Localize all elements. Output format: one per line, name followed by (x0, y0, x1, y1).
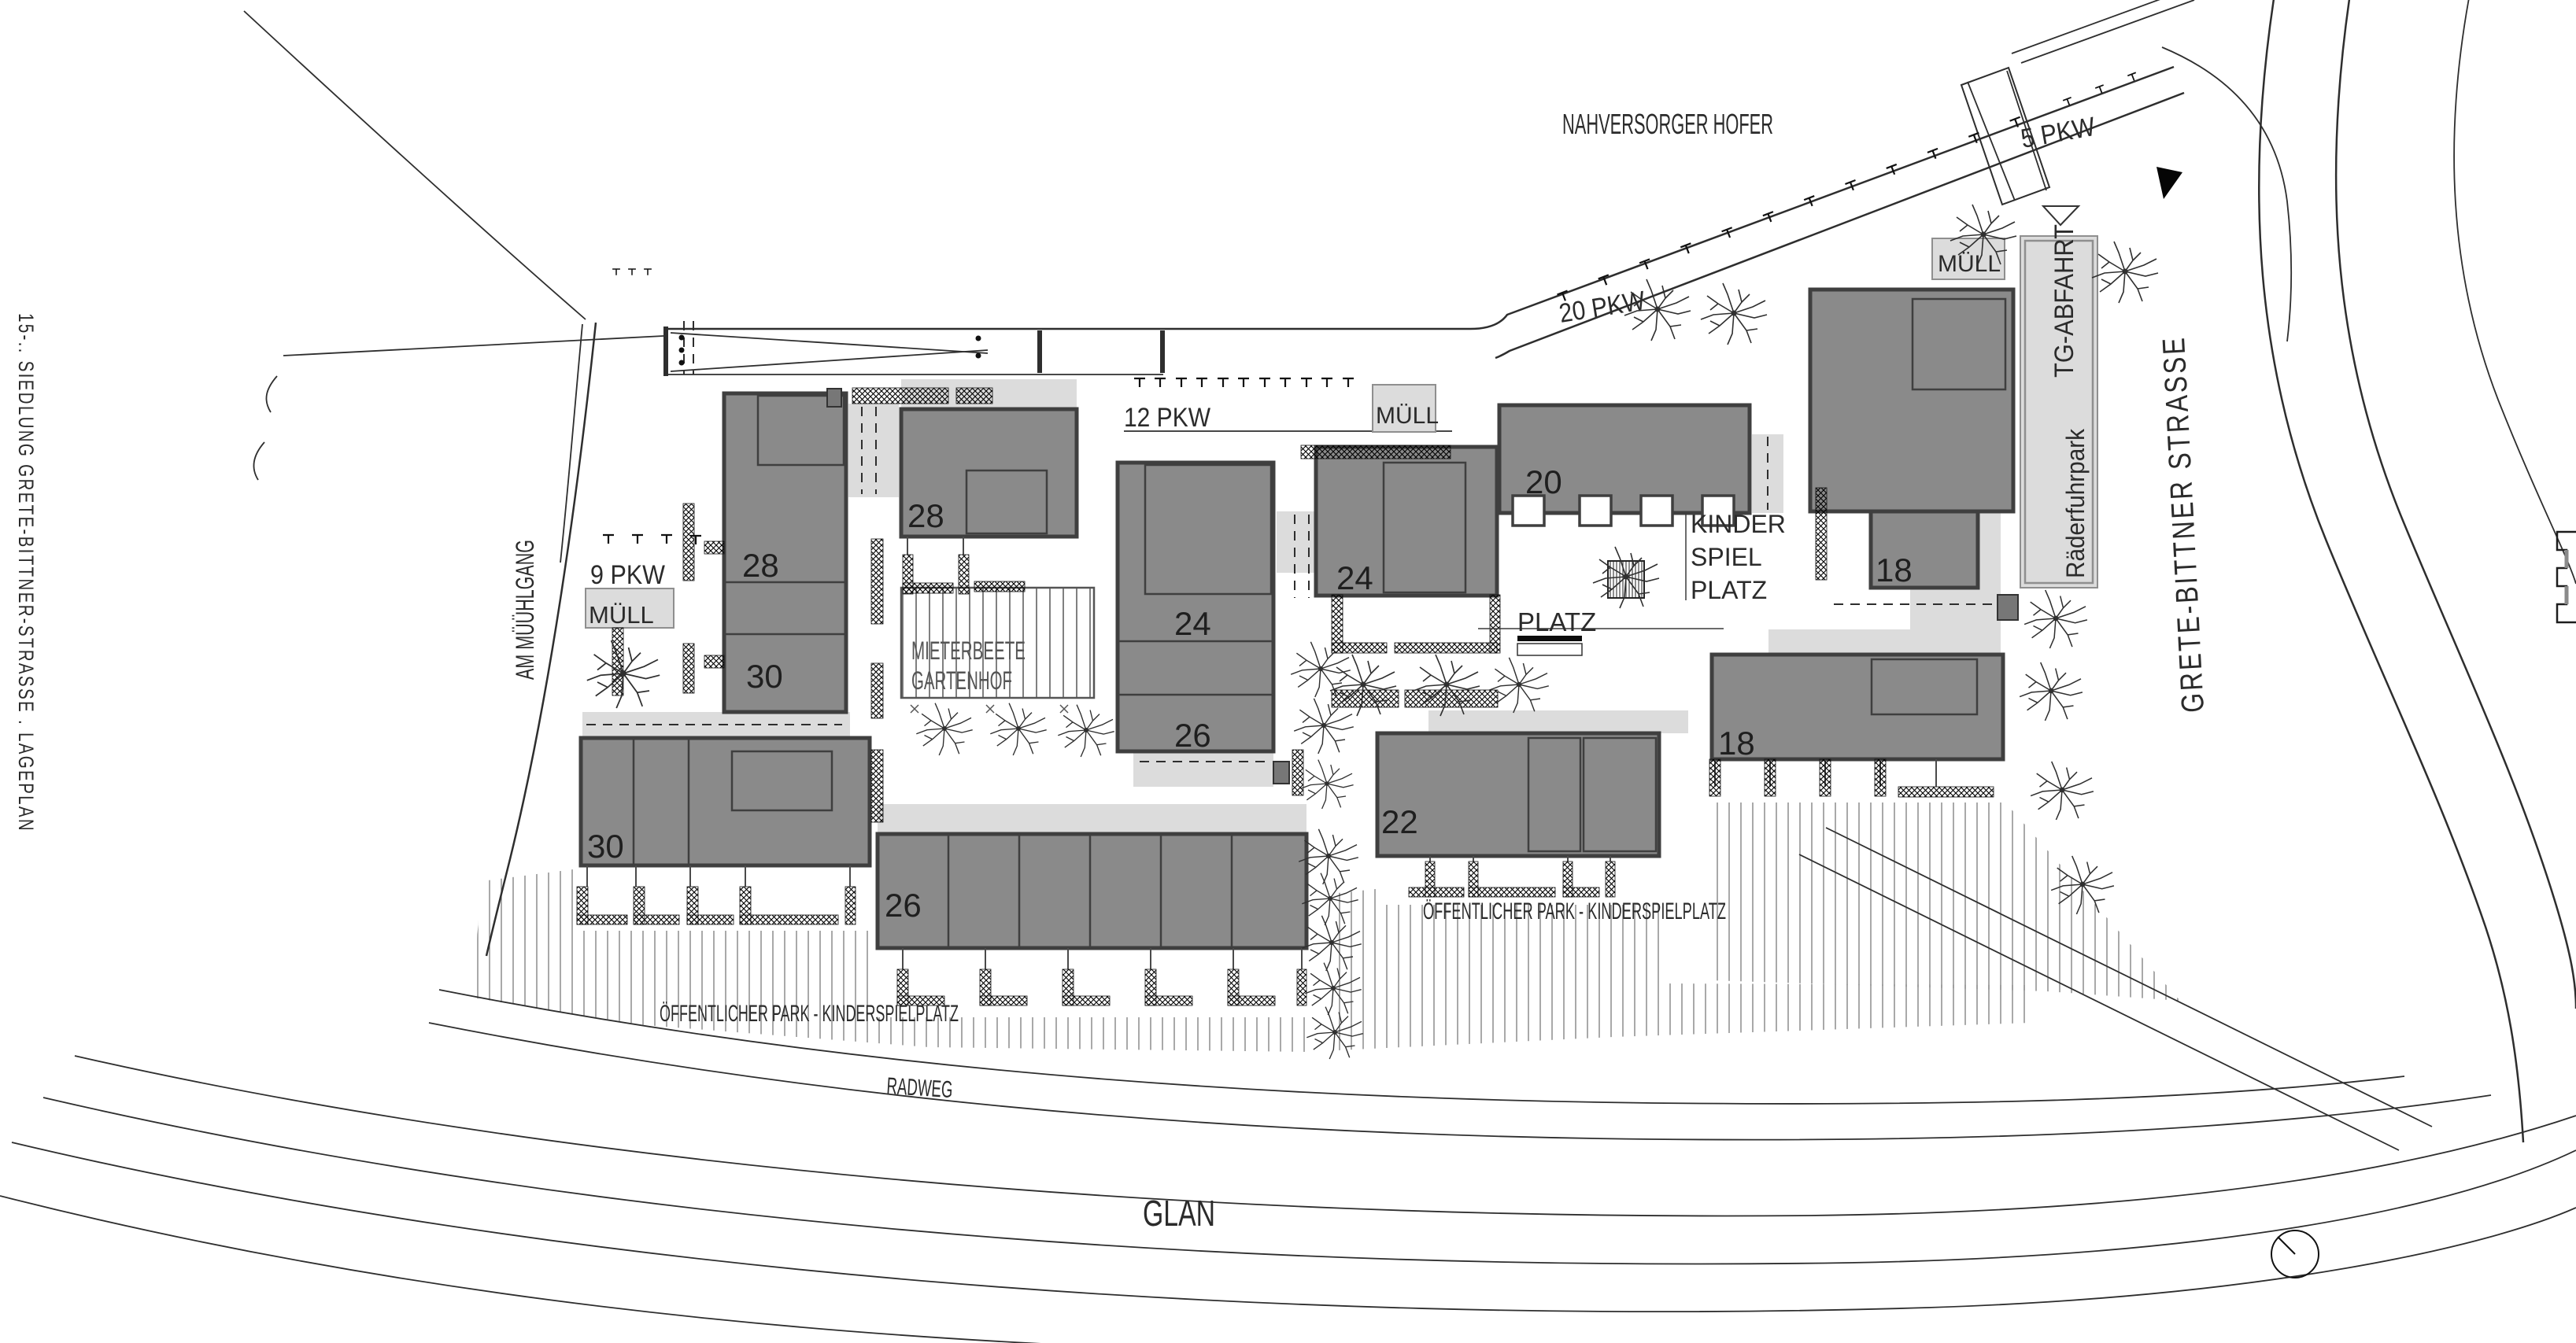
house-number-22: 22 (1381, 803, 1418, 840)
tree-icon (2024, 590, 2087, 648)
tree-icon (916, 703, 972, 755)
label-parking-12: 12 PKW (1124, 403, 1210, 433)
plan-symbols (2043, 167, 2576, 1278)
site-plan-sheet: 15-.. SIEDLUNG GRETE-BITTNER-STRASSE . L… (0, 0, 2576, 1343)
label-waste-mid: MÜLL (1376, 403, 1439, 429)
building-22 (1377, 733, 1659, 862)
label-river: GLAN (1143, 1193, 1215, 1234)
label-playground-1: KINDER (1691, 510, 1786, 538)
tree-icon (2092, 242, 2158, 303)
label-bike-path: RADWEG (886, 1073, 954, 1103)
site-plan-drawing: 15-.. SIEDLUNG GRETE-BITTNER-STRASSE . L… (0, 0, 2576, 1343)
house-number-30-west: 30 (746, 658, 783, 695)
label-tenant-beds-1: MIETERBEETE (911, 636, 1026, 665)
street-name-right: GRETE-BITTNER STRASSE (2157, 334, 2211, 714)
tree-icon (1593, 547, 1659, 608)
label-square: PLATZ (1517, 607, 1596, 636)
label-tenant-beds-2: GARTENHOF (911, 666, 1012, 695)
house-number-24-east: 24 (1336, 559, 1373, 596)
label-waste-left: MÜLL (589, 601, 654, 629)
tree-icon (2020, 662, 2083, 721)
tree-icon (990, 703, 1046, 755)
tree-icon (1300, 760, 1353, 809)
survey-circle-icon (2271, 1230, 2319, 1278)
tree-icon (1058, 705, 1114, 757)
house-number-26-south: 26 (885, 887, 922, 924)
label-parking-5: 5 PKW (2019, 112, 2097, 154)
label-waste-right: MÜLL (1938, 251, 2001, 277)
house-number-28-north: 28 (907, 497, 944, 534)
tree-icon (2031, 762, 2094, 820)
building-30-south (581, 738, 870, 887)
house-number-24-mid: 24 (1174, 605, 1211, 642)
label-park-west: ÖFFENTLICHER PARK - KINDERSPIELPLATZ (660, 1001, 959, 1027)
label-supermarket: NAHVERSORGER HOFER (1562, 108, 1773, 140)
label-garage-ramp: TG-ABFAHRT (2049, 224, 2079, 378)
tree-icon (1489, 658, 1549, 713)
house-number-26-mid: 26 (1174, 717, 1211, 754)
sheet-title: 15-.. SIEDLUNG GRETE-BITTNER-STRASSE . L… (14, 313, 38, 832)
square-and-playground (1478, 513, 1724, 655)
label-parking-9: 9 PKW (590, 560, 665, 590)
building-26-south (878, 834, 1306, 969)
label-park-east: ÖFFENTLICHER PARK - KINDERSPIELPLATZ (1423, 898, 1726, 924)
label-playground-3: PLATZ (1691, 576, 1767, 604)
tree-icon (1701, 283, 1767, 345)
label-playground-2: SPIEL (1691, 543, 1762, 571)
north-arrow-icon (2157, 167, 2182, 199)
house-number-30-south: 30 (587, 828, 624, 865)
house-number-20: 20 (1525, 463, 1562, 500)
house-number-18-north: 18 (1876, 552, 1913, 588)
building-18-south (1712, 655, 2003, 787)
entrance-triangle-icon (2043, 206, 2079, 225)
street-name-left: AM MÜÜHLGANG (511, 540, 539, 680)
label-bike-park: Räderfuhrpark (2061, 428, 2090, 578)
house-number-28-west: 28 (742, 547, 779, 584)
house-number-18-south: 18 (1718, 725, 1755, 762)
